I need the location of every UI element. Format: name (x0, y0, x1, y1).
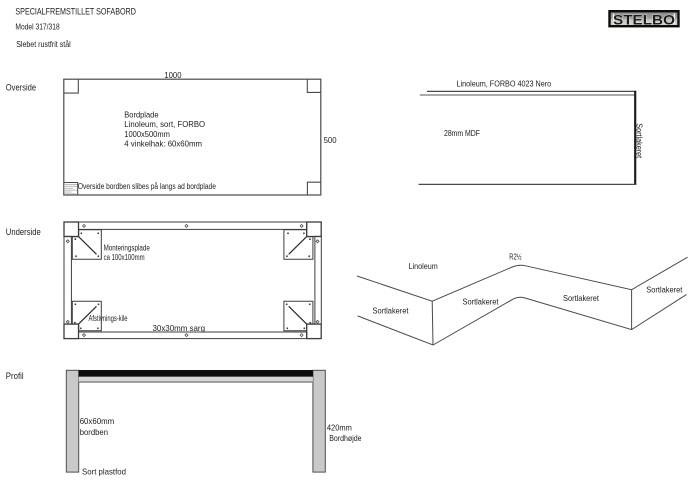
svg-text:Profil: Profil (6, 371, 24, 381)
svg-text:Sortlakeret: Sortlakeret (563, 294, 600, 303)
svg-text:bordben: bordben (80, 427, 109, 437)
svg-text:1000: 1000 (164, 70, 181, 80)
svg-text:60x60mm: 60x60mm (80, 416, 115, 426)
svg-text:Linoleum, sort, FORBO: Linoleum, sort, FORBO (124, 119, 205, 129)
svg-text:R2½: R2½ (509, 253, 521, 262)
svg-text:SPECIALFREMSTILLET SOFABORD: SPECIALFREMSTILLET SOFABORD (15, 6, 136, 16)
svg-text:Sort plastfod: Sort plastfod (82, 466, 126, 476)
svg-text:Bordplade: Bordplade (124, 110, 158, 120)
svg-text:Sortlakeret: Sortlakeret (463, 298, 500, 307)
svg-text:420mm: 420mm (327, 423, 352, 433)
svg-text:ca 100x100mm: ca 100x100mm (104, 253, 145, 262)
svg-text:30x30mm sarg: 30x30mm sarg (153, 323, 206, 333)
svg-text:STELBO: STELBO (613, 13, 675, 28)
svg-text:Afstivnings-kile: Afstivnings-kile (89, 314, 128, 323)
svg-text:Linoleum, FORBO 4023 Nero: Linoleum, FORBO 4023 Nero (457, 79, 552, 89)
svg-text:Model 317/318: Model 317/318 (15, 22, 59, 32)
svg-text:Overside bordben slibes på lan: Overside bordben slibes på langs ad bord… (78, 182, 216, 191)
svg-text:Sortlakeret: Sortlakeret (635, 123, 644, 158)
svg-text:Underside: Underside (6, 227, 41, 237)
svg-text:1000x500mm: 1000x500mm (124, 129, 170, 139)
svg-text:Sortlakeret: Sortlakeret (373, 307, 410, 316)
svg-text:Monteringsplade: Monteringsplade (104, 244, 151, 253)
svg-text:Linoleum: Linoleum (409, 262, 439, 271)
svg-text:Sortlakeret: Sortlakeret (646, 285, 683, 294)
svg-text:500: 500 (324, 135, 337, 145)
svg-text:Slebet rustfrit stål: Slebet rustfrit stål (16, 39, 71, 49)
svg-text:Overside: Overside (6, 83, 36, 93)
svg-text:Bordhøjde: Bordhøjde (329, 433, 362, 443)
svg-text:28mm MDF: 28mm MDF (444, 128, 480, 138)
svg-text:4 vinkelhak: 60x60mm: 4 vinkelhak: 60x60mm (124, 138, 202, 148)
